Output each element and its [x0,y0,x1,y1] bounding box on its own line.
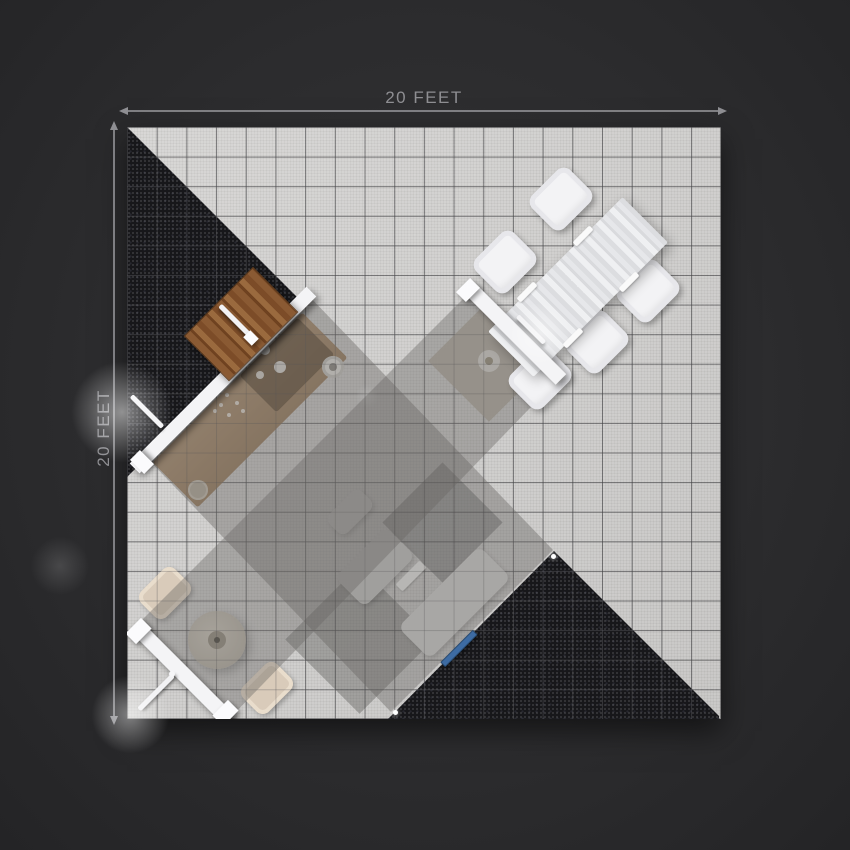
left-dimension-label: 20 FEET [94,358,114,498]
handle-pivot [169,671,175,677]
top-dimension-label: 20 FEET [324,88,524,108]
corner-marker-dot [393,710,398,715]
light-glow [28,534,92,598]
top-dimension-line [128,110,718,112]
arrowhead-left-icon [119,107,128,115]
corner-marker-dot [551,554,556,559]
arrowhead-down-icon [110,716,118,725]
floor [127,127,721,719]
arrowhead-up-icon [110,121,118,130]
arrowhead-right-icon [718,107,727,115]
